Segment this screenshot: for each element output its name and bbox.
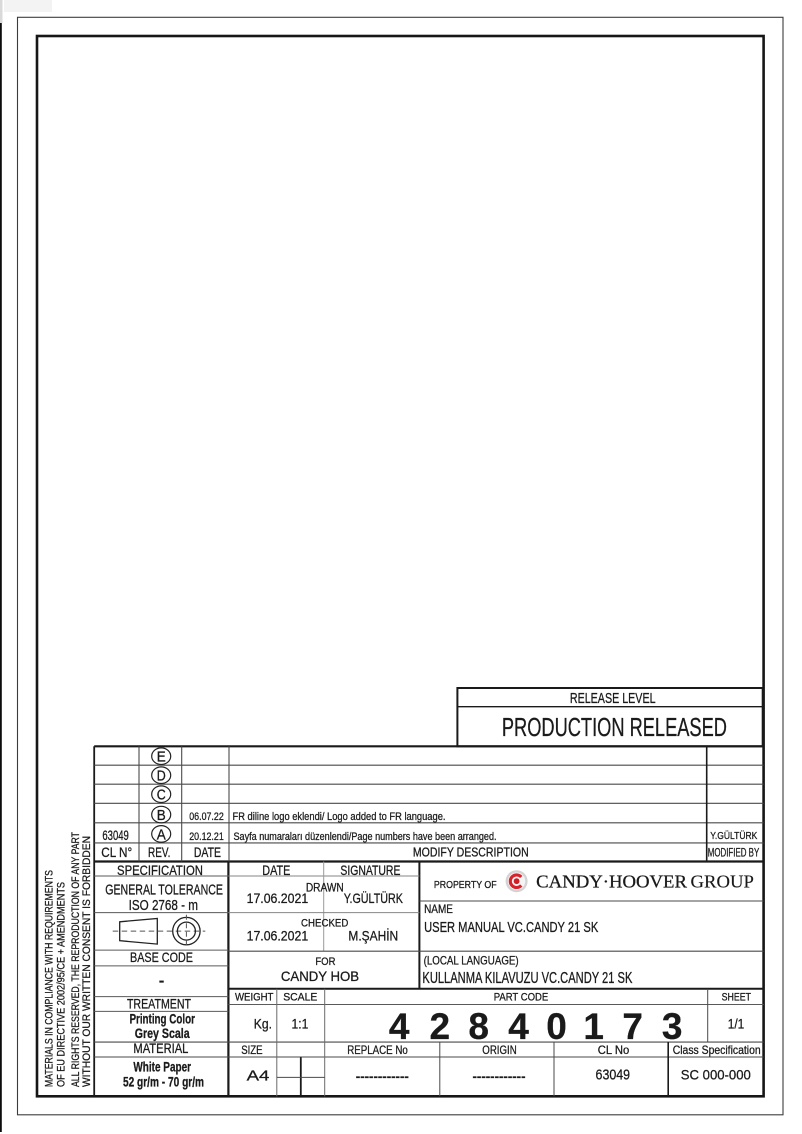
svg-text:4: 4	[389, 1006, 410, 1047]
svg-text:SCALE: SCALE	[283, 992, 317, 1004]
svg-text:B: B	[157, 808, 166, 824]
svg-text:06.07.22: 06.07.22	[189, 811, 224, 823]
svg-text:FOR: FOR	[315, 956, 335, 968]
svg-text:White Paper: White Paper	[133, 1060, 191, 1075]
svg-text:7: 7	[622, 1006, 643, 1047]
svg-text:REPLACE No: REPLACE No	[347, 1043, 408, 1057]
svg-text:63049: 63049	[596, 1068, 631, 1084]
svg-text:MATERIALS IN COMPLIANCE WITH R: MATERIALS IN COMPLIANCE WITH REQUIREMENT…	[44, 870, 56, 1087]
svg-text:PRODUCTION RELEASED: PRODUCTION RELEASED	[502, 714, 727, 742]
svg-text:Class Specification: Class Specification	[673, 1043, 761, 1057]
svg-text:PART CODE: PART CODE	[494, 991, 549, 1003]
svg-text:CHECKED: CHECKED	[301, 917, 348, 929]
svg-text:Grey Scala: Grey Scala	[135, 1026, 190, 1041]
svg-text:A: A	[157, 828, 166, 844]
svg-text:Y.GÜLTÜRK: Y.GÜLTÜRK	[710, 830, 757, 842]
svg-text:(LOCAL LANGUAGE): (LOCAL LANGUAGE)	[424, 954, 519, 968]
svg-text:REV.: REV.	[148, 845, 170, 860]
svg-text:Sayfa numaraları düzenlendi/Pa: Sayfa numaraları düzenlendi/Page numbers…	[234, 831, 497, 843]
svg-text:-: -	[159, 973, 164, 990]
svg-text:4: 4	[508, 1006, 529, 1047]
svg-text:CANDY·HOOVER: CANDY·HOOVER	[536, 871, 687, 891]
svg-text:BASE CODE: BASE CODE	[130, 949, 193, 965]
svg-text:MODIFY DESCRIPTION: MODIFY DESCRIPTION	[413, 844, 529, 859]
svg-text:PROPERTY OF: PROPERTY OF	[434, 880, 497, 891]
svg-text:DATE: DATE	[262, 863, 290, 878]
svg-text:A4: A4	[247, 1068, 270, 1085]
svg-text:C: C	[157, 788, 166, 804]
svg-text:SIZE: SIZE	[241, 1043, 262, 1057]
svg-text:TREATMENT: TREATMENT	[127, 995, 191, 1011]
svg-text:NAME: NAME	[424, 902, 453, 916]
svg-text:MODIFIED BY: MODIFIED BY	[708, 845, 760, 859]
svg-text:ISO 2768 - m: ISO 2768 - m	[129, 898, 198, 914]
svg-text:SIGNATURE: SIGNATURE	[340, 863, 400, 878]
svg-text:OF EU DIRECTIVE 2002/95/CE + A: OF EU DIRECTIVE 2002/95/CE + AMENDMENTS	[56, 882, 68, 1087]
svg-text:1/1: 1/1	[728, 1016, 745, 1032]
svg-text:SPECIFICATION: SPECIFICATION	[117, 863, 203, 878]
svg-text:0: 0	[546, 1006, 567, 1047]
svg-text:DATE: DATE	[194, 845, 221, 860]
svg-text:GROUP: GROUP	[691, 871, 754, 891]
svg-text:Y.GÜLTÜRK: Y.GÜLTÜRK	[344, 889, 404, 906]
svg-text:WITHOUT OUR WRITTEN CONSENT IS: WITHOUT OUR WRITTEN CONSENT IS FORBIDDEN	[81, 836, 93, 1087]
svg-text:17.06.2021: 17.06.2021	[247, 891, 309, 907]
svg-text:E: E	[157, 750, 166, 766]
svg-text:63049: 63049	[102, 828, 129, 843]
svg-text:3: 3	[662, 1006, 683, 1047]
svg-text:FR diline logo eklendi/ Logo a: FR diline logo eklendi/ Logo added to FR…	[233, 811, 446, 823]
svg-text:CL No: CL No	[598, 1043, 630, 1057]
svg-text:CL N°: CL N°	[101, 845, 132, 860]
svg-text:SHEET: SHEET	[722, 991, 752, 1003]
svg-text:GENERAL TOLERANCE: GENERAL TOLERANCE	[105, 882, 223, 898]
svg-text:RELEASE LEVEL: RELEASE LEVEL	[570, 690, 656, 707]
svg-text:CANDY HOB: CANDY HOB	[281, 969, 359, 984]
svg-text:Kg.: Kg.	[254, 1016, 272, 1032]
svg-text:DRAWN: DRAWN	[306, 882, 344, 895]
svg-text:52 gr/m - 70 gr/m: 52 gr/m - 70 gr/m	[123, 1075, 204, 1090]
svg-text:KULLANMA KILAVUZU VC.CANDY 21: KULLANMA KILAVUZU VC.CANDY 21 SK	[422, 970, 633, 987]
svg-text:20.12.21: 20.12.21	[189, 831, 224, 843]
svg-text:1:1: 1:1	[292, 1016, 309, 1032]
svg-text:17.06.2021: 17.06.2021	[247, 929, 309, 945]
svg-text:M.ŞAHİN: M.ŞAHİN	[348, 927, 398, 944]
svg-text:WEIGHT: WEIGHT	[235, 992, 274, 1004]
svg-text:MATERIAL: MATERIAL	[133, 1041, 188, 1056]
svg-text:D: D	[157, 769, 166, 785]
svg-text:------------: ------------	[473, 1068, 526, 1083]
svg-text:------------: ------------	[356, 1068, 409, 1083]
svg-text:SC 000-000: SC 000-000	[681, 1067, 751, 1083]
svg-text:8: 8	[468, 1006, 489, 1047]
svg-text:Printing Color: Printing Color	[129, 1011, 195, 1026]
svg-text:USER MANUAL VC.CANDY 21 SK: USER MANUAL VC.CANDY 21 SK	[424, 919, 598, 936]
svg-text:1: 1	[583, 1006, 604, 1047]
svg-text:2: 2	[430, 1006, 451, 1047]
svg-text:ORIGIN: ORIGIN	[482, 1043, 516, 1057]
